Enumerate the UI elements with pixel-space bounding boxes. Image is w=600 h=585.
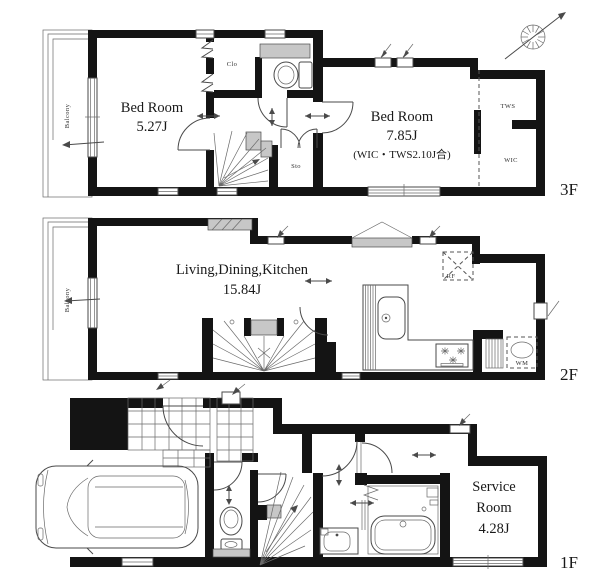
service-room-name2: Room [476, 500, 512, 516]
wic-label: WIC [504, 157, 518, 164]
floor-2f: Balcony [43, 218, 578, 390]
entrance-tiles [128, 398, 253, 467]
bedroom-small-name: Bed Room [121, 100, 184, 116]
vent-1f [450, 414, 470, 433]
flow-arrows-3f [62, 108, 330, 148]
closet-label: Clo [227, 61, 238, 68]
floor-3f: Balcony [43, 12, 578, 199]
washing-machine-label: WM [516, 360, 529, 367]
bedroom-small-area: 5.27J [136, 119, 167, 135]
bedroom-large-area: 7.85J [386, 128, 417, 144]
floor-label-1f: 1F [560, 553, 578, 572]
service-room-name1: Service [472, 479, 515, 495]
kitchen-counter [363, 285, 473, 370]
floor-plan-canvas: Balcony [0, 0, 600, 585]
car [36, 460, 198, 554]
floor-label-3f: 3F [560, 180, 578, 199]
balcony-2f: Balcony [43, 218, 92, 380]
storage-doors-3f [281, 129, 317, 148]
bedroom-large-note: (WIC・TWS2.10J合) [353, 147, 451, 161]
refrigerator: RF [443, 252, 473, 280]
washbasin [320, 528, 358, 554]
toilet-1f [213, 462, 250, 557]
service-room-area: 4.28J [478, 521, 509, 537]
bathroom [368, 486, 438, 554]
floor-plan-drawing: Balcony [0, 0, 600, 585]
compass-icon [505, 12, 566, 59]
stairs-3f [214, 131, 272, 186]
balcony-3f: Balcony [43, 30, 92, 197]
balcony-3f-label: Balcony [64, 103, 71, 128]
walls-2f [88, 218, 545, 380]
floor-label-2f: 2F [560, 365, 578, 384]
refrigerator-label: RF [447, 273, 456, 280]
ldk-name: Living,Dining,Kitchen [176, 262, 309, 278]
stairs-2f [213, 320, 315, 371]
tws-label: TWS [501, 103, 516, 110]
washroom [320, 485, 378, 554]
floor-1f: Service Room 4.28J 1F [36, 384, 578, 572]
washing-machine: WM [507, 337, 537, 368]
shelf-hatch [486, 339, 503, 368]
door-bedroom-small [178, 118, 210, 150]
stove [436, 344, 468, 367]
ldk-area: 15.84J [223, 282, 262, 298]
toilet-3f [258, 44, 312, 127]
storage-label: Sto [291, 163, 301, 170]
bathtub [371, 516, 435, 554]
bedroom-large-name: Bed Room [371, 109, 434, 125]
